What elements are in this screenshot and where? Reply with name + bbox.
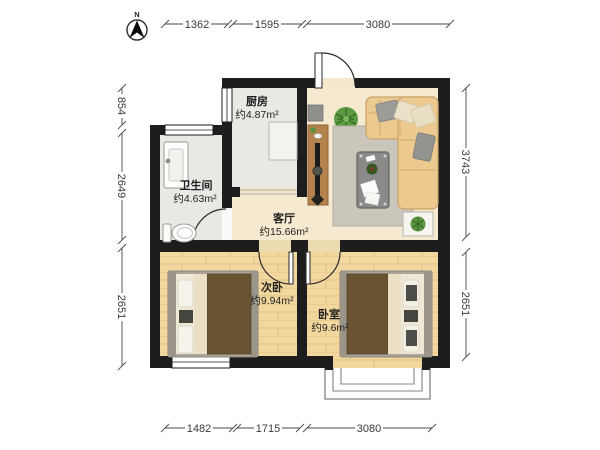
dim-value: 2651 <box>459 292 471 316</box>
dimension-top-2: 1595 <box>229 18 306 31</box>
kitchen-opening <box>240 187 297 197</box>
dim-value: 1715 <box>256 423 280 435</box>
master-bedroom-door-opening <box>308 240 340 252</box>
dimension-left-3: 2651 <box>115 244 128 370</box>
bay-floor-strip <box>333 356 422 368</box>
headboard <box>168 271 176 357</box>
second-bedroom-name: 次卧 <box>261 280 283 294</box>
blanket <box>207 274 251 354</box>
dark-cushion <box>179 310 193 323</box>
dark-cushion <box>404 310 418 322</box>
floorplan-svg: 厨房 约4.87m² 卫生间 约4.63m² 客厅 约15.66m² 次卧 约9… <box>0 0 600 450</box>
kitchen-counter <box>269 122 297 160</box>
kitchen-area: 约4.87m² <box>235 108 279 121</box>
foot-rail <box>340 271 347 357</box>
dim-value: 1482 <box>187 423 211 435</box>
floorplan-canvas: 厨房 约4.87m² 卫生间 约4.63m² 客厅 约15.66m² 次卧 约9… <box>0 0 600 450</box>
second-bedroom-area: 约9.94m² <box>250 294 294 307</box>
dimension-left-1: 854 <box>115 84 128 129</box>
dimension-top-3: 3080 <box>303 18 454 31</box>
master-bedroom-bed <box>340 271 432 357</box>
north-compass-icon: N <box>127 10 147 40</box>
blanket <box>347 274 388 354</box>
dimension-top-1: 1362 <box>161 18 232 31</box>
dim-value: 1362 <box>185 19 209 31</box>
dim-value: 3080 <box>357 423 381 435</box>
second-bedroom-bed <box>168 271 258 357</box>
foot-rail <box>251 271 258 357</box>
dimension-bottom-3: 3080 <box>303 422 436 435</box>
master-bedroom-name: 卧室 <box>318 307 340 321</box>
master-bedroom-area: 约9.6m² <box>311 321 349 334</box>
kitchen-name: 厨房 <box>246 94 268 108</box>
dimension-right-2: 2651 <box>459 248 472 361</box>
dimension-left-2: 2649 <box>115 129 128 244</box>
shoe-cabinet <box>308 105 323 121</box>
dim-value: 854 <box>115 97 127 115</box>
living-room-area: 约15.66m² <box>259 225 309 238</box>
pillow <box>178 326 193 353</box>
dim-value: 2649 <box>115 174 127 198</box>
bathroom-name: 卫生间 <box>180 178 213 192</box>
dimension-right-1: 3743 <box>459 84 472 241</box>
dimension-bottom-2: 1715 <box>233 422 304 435</box>
bathroom-door-opening <box>222 208 232 242</box>
headboard <box>424 271 432 357</box>
dim-value: 3080 <box>366 19 390 31</box>
dim-value: 2651 <box>115 295 127 319</box>
dim-value: 3743 <box>459 150 471 174</box>
compass-north-label: N <box>134 10 139 19</box>
dim-value: 1595 <box>255 19 279 31</box>
living-room-name: 客厅 <box>272 211 295 225</box>
pillow <box>178 280 193 307</box>
tv-cabinet <box>308 125 328 206</box>
sheet-fold <box>388 274 401 354</box>
side-table <box>403 212 433 236</box>
dimension-bottom-1: 1482 <box>161 422 237 435</box>
coffee-table <box>357 152 389 208</box>
toilet <box>163 224 196 242</box>
sheet-fold <box>194 274 207 354</box>
bathroom-area: 约4.63m² <box>173 192 217 205</box>
second-bedroom-door-opening <box>259 240 291 252</box>
